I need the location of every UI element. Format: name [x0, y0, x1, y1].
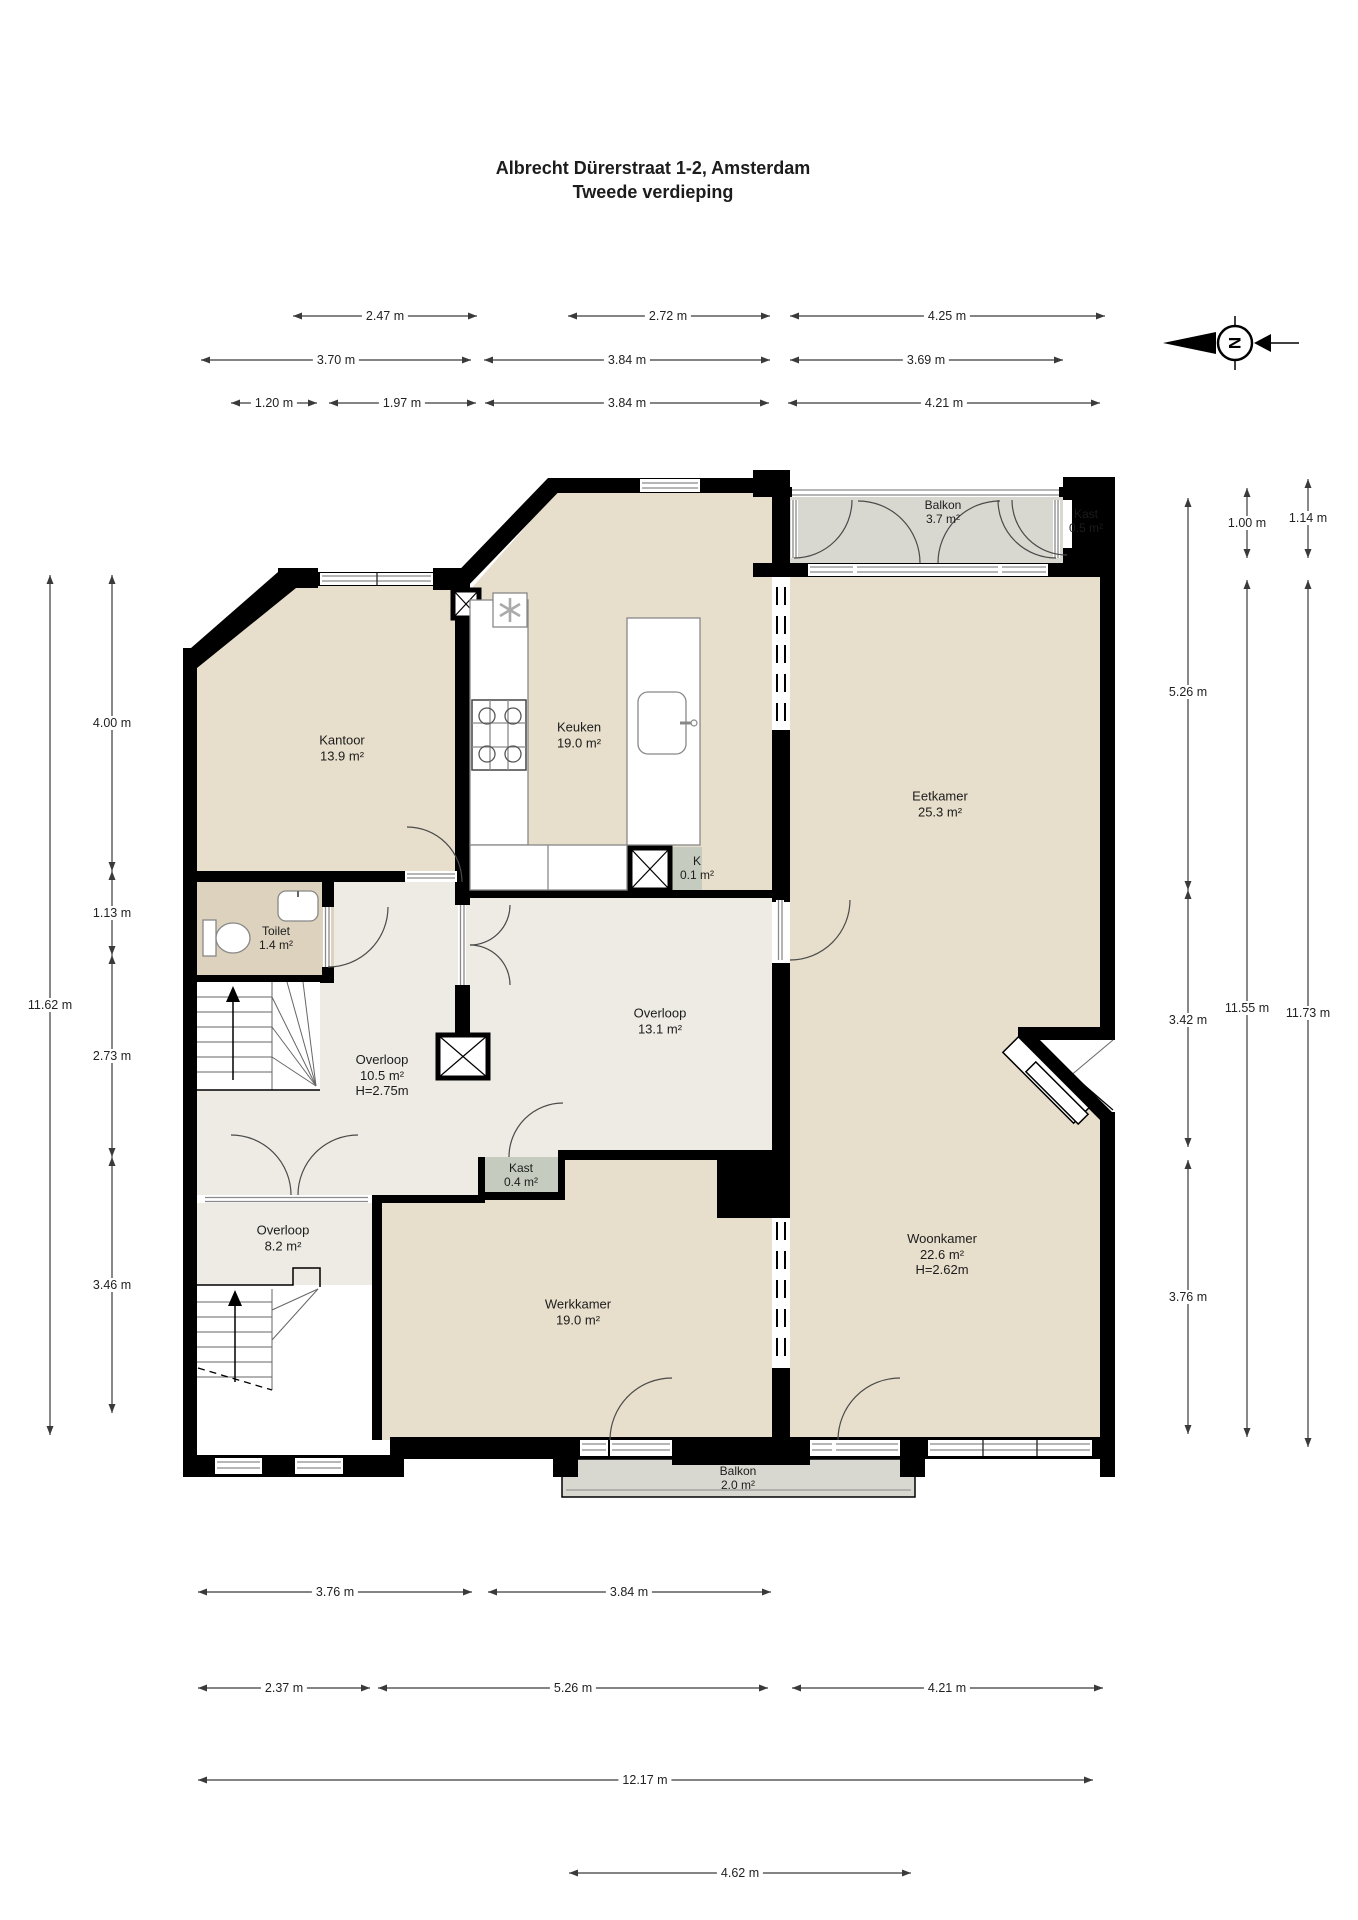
room-label-balkon-bottom: Balkon 2.0 m²	[720, 1464, 757, 1492]
shaft-keuken	[630, 848, 670, 890]
dim-label: 4.21 m	[924, 1681, 970, 1695]
chimney-block	[717, 1150, 790, 1218]
room-label-overloop-8: Overloop 8.2 m²	[257, 1223, 310, 1254]
room-name: Toilet	[259, 924, 293, 938]
dim-label: 1.20 m	[251, 396, 297, 410]
room-label-kast-04: Kast 0.4 m²	[504, 1161, 538, 1189]
room-label-woonkamer: Woonkamer 22.6 m² H=2.62m	[907, 1231, 977, 1278]
room-area: 2.0 m²	[720, 1478, 757, 1492]
room-name: Overloop	[634, 1006, 687, 1022]
woonkamer-window-large	[928, 1440, 1092, 1456]
room-area: 1.4 m²	[259, 938, 293, 952]
balkon-railing	[788, 487, 1063, 497]
dim-label: 3.84 m	[604, 353, 650, 367]
room-name: Balkon	[720, 1464, 757, 1478]
dim-label: 11.55 m	[1221, 1001, 1273, 1015]
dim-label: 4.62 m	[717, 1866, 763, 1880]
stairwell-window-2	[295, 1458, 343, 1474]
dim-label: 3.46 m	[89, 1278, 135, 1292]
kantoor-door-gap	[405, 871, 457, 882]
dim-label: 2.37 m	[261, 1681, 307, 1695]
compass-north-arrow	[1163, 332, 1216, 354]
room-label-kast-05: Kast 0.5 m²	[1069, 507, 1103, 535]
room-label-k-closet: K 0.1 m²	[680, 854, 714, 882]
room-label-toilet: Toilet 1.4 m²	[259, 924, 293, 952]
room-name: Kast	[504, 1161, 538, 1175]
room-area: 10.5 m²	[355, 1067, 408, 1083]
room-name: Kantoor	[319, 733, 365, 749]
woonkamer-door-sill	[834, 1440, 900, 1456]
room-area: 22.6 m²	[907, 1246, 977, 1262]
eetkamer-north-window-left	[808, 564, 855, 576]
room-name: Overloop	[257, 1223, 310, 1239]
plan-title-address: Albrecht Dürerstraat 1-2, Amsterdam	[496, 156, 810, 180]
room-area: 19.0 m²	[557, 735, 601, 751]
room-name: Woonkamer	[907, 1231, 977, 1247]
dim-label: 4.21 m	[921, 396, 967, 410]
room-area: 13.9 m²	[319, 748, 365, 764]
room-label-keuken: Keuken 19.0 m²	[557, 720, 601, 751]
floorplan-page: N Albrecht Dürerstraat 1-2, Amsterdam Tw…	[0, 0, 1358, 1920]
dim-label: 1.97 m	[379, 396, 425, 410]
room-label-balkon-top: Balkon 3.7 m²	[925, 498, 962, 526]
dim-label: 12.17 m	[618, 1773, 671, 1787]
dim-label: 3.69 m	[903, 353, 949, 367]
dim-label: 3.76 m	[312, 1585, 358, 1599]
dim-label: 11.62 m	[24, 998, 76, 1012]
dim-label: 4.00 m	[89, 716, 135, 730]
dim-label: 2.72 m	[645, 309, 691, 323]
dim-label: 5.26 m	[1165, 685, 1211, 699]
dim-label: 3.84 m	[604, 396, 650, 410]
room-area: 25.3 m²	[912, 804, 968, 820]
stairs-upper	[197, 982, 320, 1090]
stove-icon	[472, 700, 526, 770]
plan-title: Albrecht Dürerstraat 1-2, Amsterdam Twee…	[496, 156, 810, 204]
stairwell-window-1	[215, 1458, 262, 1474]
dim-label: 2.73 m	[89, 1049, 135, 1063]
room-area: 0.1 m²	[680, 868, 714, 882]
room-area: 0.5 m²	[1069, 521, 1103, 535]
dim-label: 3.84 m	[606, 1585, 652, 1599]
room-label-overloop-10: Overloop 10.5 m² H=2.75m	[355, 1052, 408, 1099]
plan-title-floor: Tweede verdieping	[496, 180, 810, 204]
room-height: H=2.75m	[355, 1083, 408, 1099]
room-area: 3.7 m²	[925, 512, 962, 526]
room-label-werkkamer: Werkkamer 19.0 m²	[545, 1297, 611, 1328]
compass-north-letter: N	[1225, 337, 1244, 349]
room-name: Keuken	[557, 720, 601, 736]
room-name: Werkkamer	[545, 1297, 611, 1313]
stairwell-void	[197, 1287, 372, 1455]
overloop-partition-glazing	[205, 1196, 368, 1203]
room-name: K	[680, 854, 714, 868]
room-area: 0.4 m²	[504, 1175, 538, 1189]
dim-label: 1.13 m	[89, 906, 135, 920]
dim-label: 3.76 m	[1165, 1290, 1211, 1304]
dim-label: 2.47 m	[362, 309, 408, 323]
room-name: Balkon	[925, 498, 962, 512]
floorplan-drawing: N	[0, 0, 1358, 1920]
room-name: Overloop	[355, 1052, 408, 1068]
room-area: 19.0 m²	[545, 1312, 611, 1328]
room-height: H=2.62m	[907, 1262, 977, 1278]
eetkamer-north-window-right	[1000, 564, 1048, 576]
kantoor-top-window	[320, 573, 433, 585]
room-name: Kast	[1069, 507, 1103, 521]
dim-label: 11.73 m	[1282, 1006, 1334, 1020]
balkon-french-door-sill	[855, 564, 1000, 576]
dim-label: 4.25 m	[924, 309, 970, 323]
werkkamer-window	[580, 1440, 608, 1456]
room-area: 13.1 m²	[634, 1021, 687, 1037]
room-area: 8.2 m²	[257, 1238, 310, 1254]
compass-rose: N	[1163, 316, 1299, 370]
dim-label: 3.42 m	[1165, 1013, 1211, 1027]
keuken-top-window	[640, 479, 700, 492]
room-label-overloop-13: Overloop 13.1 m²	[634, 1006, 687, 1037]
washbasin-icon	[278, 891, 318, 921]
dim-label: 5.26 m	[550, 1681, 596, 1695]
dim-label: 3.70 m	[313, 353, 359, 367]
eetkamer-woonkamer-floor	[790, 577, 1100, 1440]
room-label-eetkamer: Eetkamer 25.3 m²	[912, 789, 968, 820]
room-name: Eetkamer	[912, 789, 968, 805]
ventilation-icon	[493, 593, 527, 627]
toilet-icon	[203, 920, 250, 956]
dim-label: 1.00 m	[1224, 516, 1270, 530]
room-label-kantoor: Kantoor 13.9 m²	[319, 733, 365, 764]
shaft-overloop	[438, 1035, 488, 1078]
werkkamer-door-sill	[610, 1440, 672, 1456]
dim-label: 1.14 m	[1285, 511, 1331, 525]
woonkamer-window-small	[810, 1440, 834, 1456]
